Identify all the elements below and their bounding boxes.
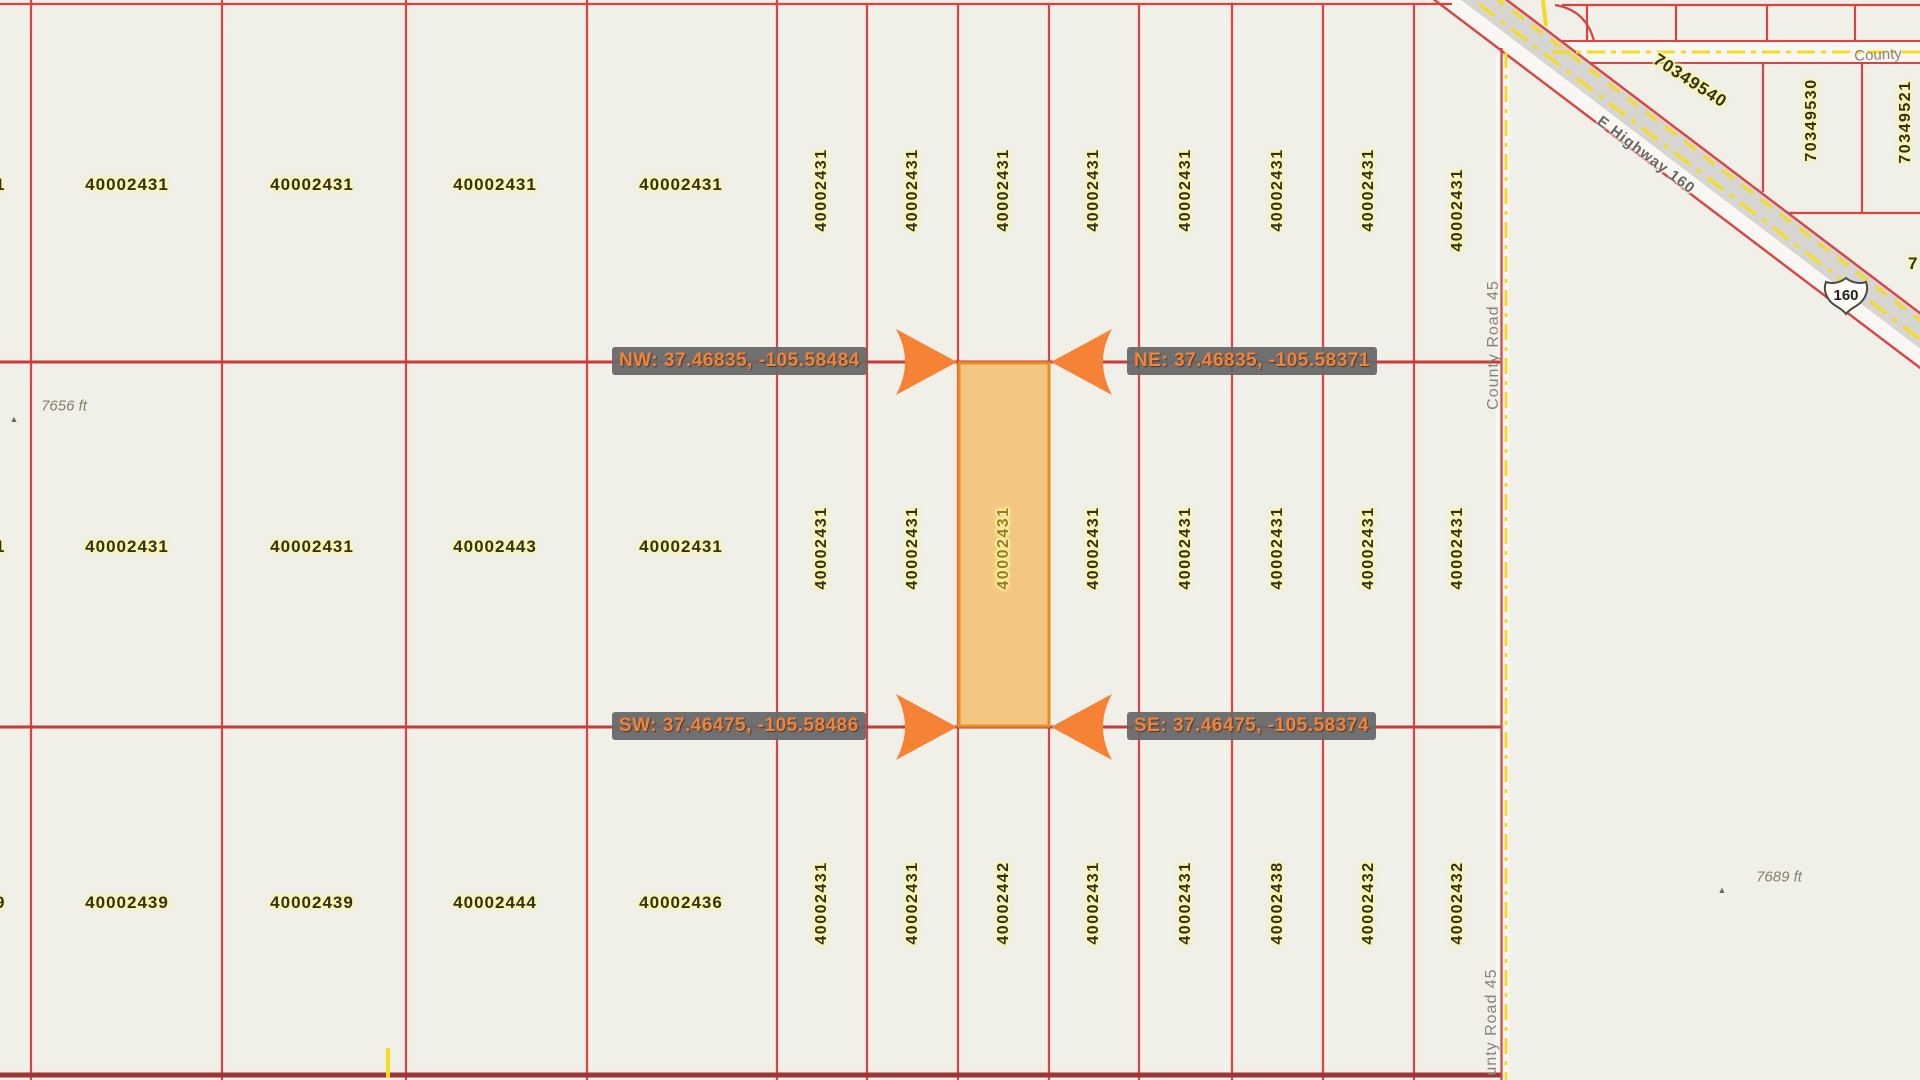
parcel-label: 40002431 <box>1449 506 1467 589</box>
parcel-label: 40002442 <box>995 861 1013 944</box>
parcel-label: 40002443 <box>453 537 537 557</box>
parcel-label: 40002431 <box>85 537 169 557</box>
parcel-label: 40002431 <box>995 148 1013 231</box>
parcel-label: 40002431 <box>1177 506 1195 589</box>
gis-parcel-map[interactable]: 160 40002431 40002431 40002431 40002431 … <box>0 0 1920 1080</box>
parcel-label: 40002436 <box>639 893 723 913</box>
parcel-label: 40002431 <box>1269 148 1287 231</box>
mountain-peak-icon: ▲ <box>1718 885 1727 895</box>
highlighted-parcel-label: 40002431 <box>995 506 1013 589</box>
coordinate-callout-ne: NE: 37.46835, -105.58371 <box>1127 347 1377 375</box>
elevation-label: 7656 ft <box>41 398 87 415</box>
parcel-label: 40002431 <box>1085 148 1103 231</box>
parcel-label: 40002431 <box>1269 506 1287 589</box>
parcel-label: 40002431 <box>639 537 723 557</box>
highway-shield-number: 160 <box>1833 287 1858 304</box>
parcel-label: 40002431 <box>1360 148 1378 231</box>
parcel-label: 40002439 <box>85 893 169 913</box>
parcel-label: 40002431 <box>813 148 831 231</box>
parcel-label: 40002432 <box>1449 861 1467 944</box>
parcel-label: 40002431 <box>270 175 354 195</box>
parcel-label: 40002431 <box>1177 148 1195 231</box>
parcel-label: 40002431 <box>1177 861 1195 944</box>
parcel-label: 40002431 <box>813 506 831 589</box>
parcel-label: 40002431 <box>813 861 831 944</box>
parcel-label: 40002431 <box>270 537 354 557</box>
parcel-label: 40002431 <box>85 175 169 195</box>
mountain-peak-icon: ▲ <box>10 414 19 424</box>
parcel-label: 40002431 <box>904 861 922 944</box>
coordinate-callout-nw: NW: 37.46835, -105.58484 <box>612 347 867 375</box>
parcel-label: 40002431 <box>1360 506 1378 589</box>
county-road-top-label: County <box>1854 45 1902 64</box>
parcel-label: 40002431 <box>1085 861 1103 944</box>
coordinate-callout-se: SE: 37.46475, -105.58374 <box>1127 712 1376 740</box>
parcel-label: 40002431 <box>639 175 723 195</box>
parcel-label: 40002431 <box>904 506 922 589</box>
parcel-label-clipped: 9 <box>0 893 5 913</box>
parcel-label: 40002431 <box>453 175 537 195</box>
county-road-45-label-lower: unty Road 45 <box>1483 968 1501 1075</box>
elevation-label: 7689 ft <box>1756 869 1802 886</box>
parcel-label: 40002438 <box>1269 861 1287 944</box>
parcel-label-clipped: 1 <box>0 175 5 195</box>
parcel-label: 40002431 <box>1085 506 1103 589</box>
parcel-label-clipped: 7 <box>1908 254 1918 274</box>
county-road-45-label: County Road 45 <box>1485 280 1503 410</box>
parcel-label: 40002432 <box>1360 861 1378 944</box>
parcel-label: 40002431 <box>1449 168 1467 251</box>
coordinate-callout-sw: SW: 37.46475, -105.58486 <box>612 712 866 740</box>
parcel-label-clipped: 1 <box>0 537 5 557</box>
parcel-label: 40002444 <box>453 893 537 913</box>
parcel-label: 40002439 <box>270 893 354 913</box>
parcel-label: 40002431 <box>904 148 922 231</box>
parcel-label: 70349530 <box>1803 78 1821 161</box>
parcel-label: 70349521 <box>1897 80 1915 163</box>
